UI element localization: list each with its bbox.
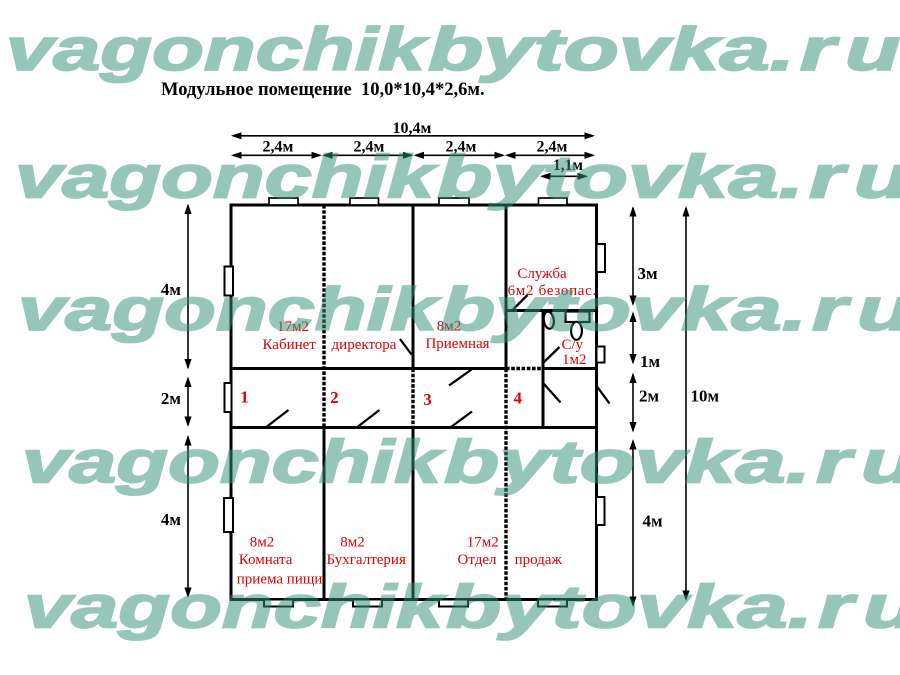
svg-text:Отдел: Отдел: [458, 552, 497, 568]
svg-text:С/у: С/у: [561, 337, 583, 353]
svg-text:2: 2: [330, 388, 339, 407]
svg-text:Бухгалтерия: Бухгалтерия: [327, 552, 406, 568]
svg-text:2,4м: 2,4м: [354, 139, 385, 156]
svg-text:8м2: 8м2: [340, 534, 365, 550]
svg-text:2,4м: 2,4м: [537, 139, 568, 156]
svg-text:Служба: Служба: [517, 266, 567, 282]
svg-text:10м: 10м: [691, 387, 720, 406]
svg-text:приема пищи: приема пищи: [237, 571, 323, 587]
svg-text:8м2: 8м2: [437, 319, 462, 335]
svg-text:2м: 2м: [639, 387, 660, 406]
svg-text:6м2 безопас.: 6м2 безопас.: [508, 283, 597, 299]
svg-text:10,4м: 10,4м: [393, 120, 432, 137]
svg-text:1м: 1м: [640, 352, 661, 371]
svg-text:17м2: 17м2: [467, 534, 499, 550]
svg-text:4: 4: [514, 389, 523, 408]
svg-text:1: 1: [240, 388, 249, 407]
svg-text:8м2: 8м2: [250, 534, 275, 550]
svg-text:Комната: Комната: [239, 552, 293, 568]
svg-text:4м: 4м: [643, 512, 664, 531]
svg-text:3: 3: [423, 390, 432, 409]
svg-text:4м: 4м: [161, 280, 182, 299]
svg-text:2м: 2м: [161, 389, 182, 408]
svg-text:Кабинет: Кабинет: [263, 337, 317, 353]
svg-text:директора: директора: [332, 337, 397, 353]
svg-text:2,4м: 2,4м: [263, 139, 294, 156]
svg-text:1м2: 1м2: [562, 352, 587, 368]
svg-text:Приемная: Приемная: [425, 336, 489, 352]
svg-text:продаж: продаж: [515, 552, 563, 568]
svg-text:17м2: 17м2: [277, 319, 309, 335]
svg-text:4м: 4м: [161, 510, 182, 529]
svg-text:2,4м: 2,4м: [446, 139, 477, 156]
svg-text:3м: 3м: [638, 264, 659, 283]
svg-text:1,1м: 1,1м: [553, 157, 583, 174]
svg-text:Модульное помещение 10,0*10,4: Модульное помещение 10,0*10,4*2,6м.: [161, 80, 485, 100]
